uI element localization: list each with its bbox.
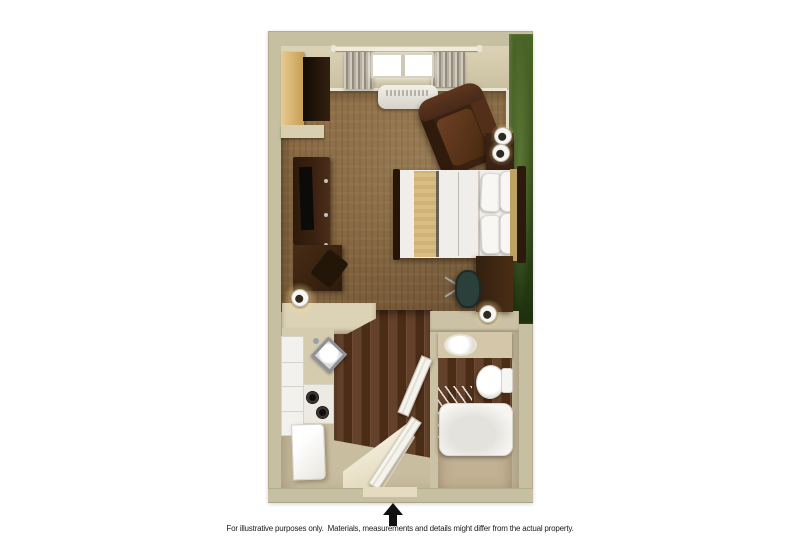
console-knob <box>324 179 328 183</box>
nightstand-lamp <box>492 144 510 162</box>
nightstand-lamp <box>494 127 512 145</box>
curtain-rod <box>333 47 479 51</box>
refrigerator <box>291 423 326 480</box>
bed-fold-line <box>478 171 480 257</box>
bathroom-wall-left <box>430 332 438 498</box>
floorplan-render: For illustrative purposes only. Material… <box>0 0 800 560</box>
curtain-rod-knob <box>477 45 482 52</box>
kitchen-cabinets <box>281 336 304 436</box>
closet-wall-stub <box>281 125 324 138</box>
bed-footboard <box>393 169 400 260</box>
desk-lamp <box>479 305 497 323</box>
stove-burner-rear <box>316 406 329 419</box>
tv-screen <box>299 167 314 230</box>
curtain-right <box>431 52 465 87</box>
bed-fold-line <box>436 171 439 257</box>
duvet-crease <box>458 172 459 256</box>
kitchen-faucet <box>313 338 319 344</box>
bathtub <box>439 403 513 456</box>
disclaimer-caption: For illustrative purposes only. Material… <box>0 524 800 533</box>
bed-runner <box>414 171 436 257</box>
stove-burner-front <box>306 391 319 404</box>
toilet-tank <box>501 368 513 393</box>
curtain-left <box>344 52 374 89</box>
closet-hanging-area <box>303 57 330 121</box>
closet-shelf <box>281 52 304 127</box>
entry-threshold <box>363 487 417 497</box>
curtain-rod-knob <box>331 45 336 52</box>
vanity-sink <box>444 334 477 356</box>
headboard-frame <box>517 166 526 263</box>
console-knob <box>324 213 328 217</box>
table-lamp <box>291 289 309 307</box>
window-panes <box>371 53 434 78</box>
